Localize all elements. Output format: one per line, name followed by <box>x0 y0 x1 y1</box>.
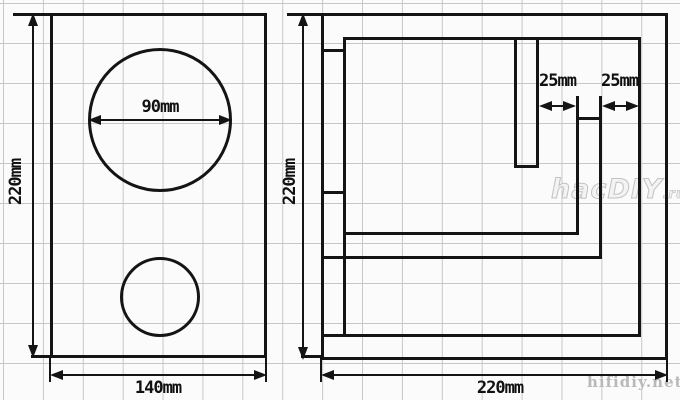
arrowhead-left-icon <box>50 370 63 380</box>
front-width-dimension-label: 140mm <box>108 379 208 397</box>
divider2-top-cap <box>576 117 602 120</box>
blueprint-canvas: 220mm 90mm 140mm <box>0 0 680 400</box>
arrowhead-right-icon <box>254 370 267 380</box>
front-height-dimension-label: 220mm <box>7 149 25 215</box>
port-cutout-circle <box>120 257 200 337</box>
arrowhead-left-icon <box>602 101 615 111</box>
arrowhead-down-icon <box>298 347 308 360</box>
arrowhead-up-icon <box>28 13 38 26</box>
divider1-bottom-cap <box>514 165 539 168</box>
front-height-dimension-line <box>32 15 34 358</box>
front-width-dimension-line <box>53 374 264 376</box>
section-height-dimension-line <box>302 15 304 358</box>
upper-shelf-line <box>343 232 579 235</box>
divider1-left-line <box>514 37 517 168</box>
arrowhead-up-icon <box>298 13 308 26</box>
inner-bottom-wall-line <box>321 334 641 337</box>
driver-hole-bottom-rung <box>321 191 346 194</box>
arrowhead-right-icon <box>563 101 576 111</box>
section-width-dimension-label: 220mm <box>445 379 555 397</box>
driver-hole-top-rung <box>321 49 346 52</box>
enclosure-outline <box>321 13 668 360</box>
lower-shelf-line <box>321 256 602 259</box>
arrowhead-right-icon <box>626 101 639 111</box>
driver-diameter-label: 90mm <box>125 98 195 116</box>
gap1-dimension-label: 25mm <box>530 72 585 90</box>
inner-top-wall-line <box>343 37 641 40</box>
divider2-right-line <box>599 96 602 259</box>
arrowhead-right-icon <box>655 370 668 380</box>
section-height-dimension-label: 220mm <box>281 149 299 215</box>
inner-front-wall-line <box>343 37 346 337</box>
section-width-dimension-line <box>325 374 664 376</box>
arrowhead-left-icon <box>88 115 101 125</box>
arrowhead-right-icon <box>219 115 232 125</box>
driver-diameter-arrow-line <box>92 119 228 121</box>
gap2-dimension-label: 25mm <box>592 72 647 90</box>
arrowhead-down-icon <box>28 345 38 358</box>
arrowhead-left-icon <box>321 370 334 380</box>
arrowhead-left-icon <box>539 101 552 111</box>
